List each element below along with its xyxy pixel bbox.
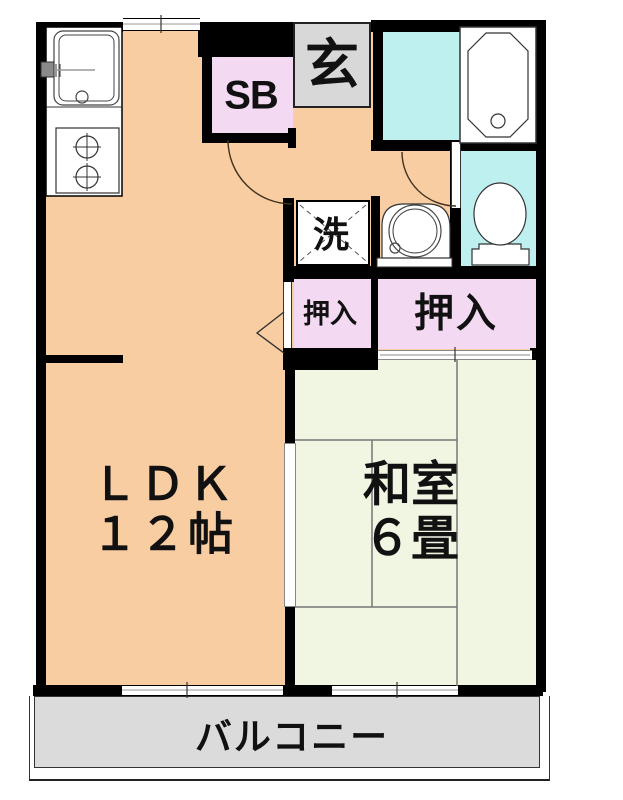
genkan-label: 玄: [305, 35, 359, 95]
ldk-label-line1: ＬＤＫ: [92, 460, 236, 510]
washitsu-label-line1: 和室: [363, 458, 459, 512]
shoe-box-label: SB: [224, 74, 278, 119]
closet-door-marker: [257, 312, 284, 353]
washbasin-icon: [377, 204, 452, 267]
entrance-door-arc: [228, 140, 292, 204]
washitsu-label: 和室 ６畳: [363, 458, 459, 566]
floor-plan: 玄 SB 洗 押入 押入 ＬＤＫ １２帖 和室 ６畳 バルコニー: [0, 0, 623, 800]
fixtures-layer: [0, 0, 623, 800]
ldk-label: ＬＤＫ １２帖: [92, 460, 236, 561]
toilet-door-arc: [402, 152, 456, 206]
balcony-label: バルコニー: [195, 716, 389, 757]
closet-small-label: 押入: [303, 299, 357, 329]
bathtub-icon: [460, 27, 536, 143]
stove-icon: [56, 128, 119, 193]
washitsu-label-line2: ６畳: [363, 512, 459, 566]
ldk-label-line2: １２帖: [92, 510, 236, 560]
laundry-label: 洗: [313, 215, 349, 255]
closet-large-label: 押入: [414, 292, 498, 337]
toilet-icon: [472, 183, 529, 265]
